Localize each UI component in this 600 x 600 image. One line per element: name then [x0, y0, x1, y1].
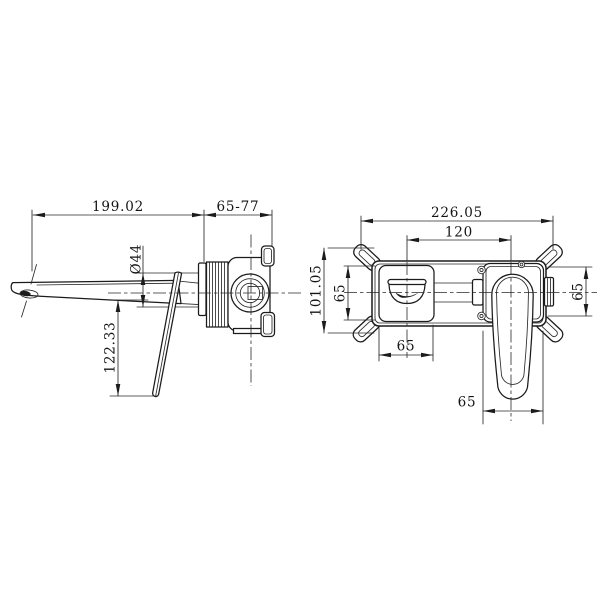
dim-rough-in-depth-label: 65-77 [217, 199, 260, 215]
mounting-ear-bottom-side [261, 313, 275, 337]
spout-edge-to-wall-bottom [181, 304, 199, 305]
dim-rough-in-depth: 65-77 [204, 199, 272, 246]
valve-body-step [234, 329, 263, 334]
wall-flange [199, 263, 207, 316]
dim-overall-height-label: 101.05 [309, 264, 325, 316]
dim-left-box-height-label: 65 [333, 284, 349, 303]
side-connector [545, 278, 554, 307]
mounting-ear-top-side [262, 246, 275, 266]
dim-left-box-width-label: 65 [397, 339, 416, 355]
technical-drawing-page: 199.02 65-77 Ø44 122.33 [0, 0, 600, 600]
dim-handle-drop-label: 122.33 [103, 321, 119, 373]
dim-hole-spacing: 120 [407, 225, 511, 262]
spout-edge-to-wall-top [178, 281, 199, 283]
dim-handle-box-width-label: 65 [458, 395, 477, 411]
dim-overall-width-label: 226.05 [431, 205, 483, 221]
cartridge-screw-top [518, 261, 524, 267]
dim-hole-spacing-label: 120 [445, 225, 473, 241]
dim-left-box-width: 65 [379, 325, 433, 361]
dim-handle-drop: 122.33 [103, 300, 159, 396]
fixing-screw-bottom [478, 312, 486, 320]
dim-right-box-height: 65 [548, 267, 592, 316]
dim-spout-diameter-label: Ø44 [129, 244, 145, 275]
front-view [351, 242, 565, 399]
spout-outlet-box [379, 266, 434, 322]
dim-left-box-height: 65 [333, 266, 376, 320]
fixing-screw-top [478, 266, 486, 274]
faucet-dimension-drawing: 199.02 65-77 Ø44 122.33 [0, 0, 600, 600]
mixer-handle-front [492, 274, 533, 399]
threaded-section [207, 262, 229, 327]
dim-spout-length-label: 199.02 [92, 199, 144, 215]
dim-right-box-height-label: 65 [571, 282, 587, 301]
